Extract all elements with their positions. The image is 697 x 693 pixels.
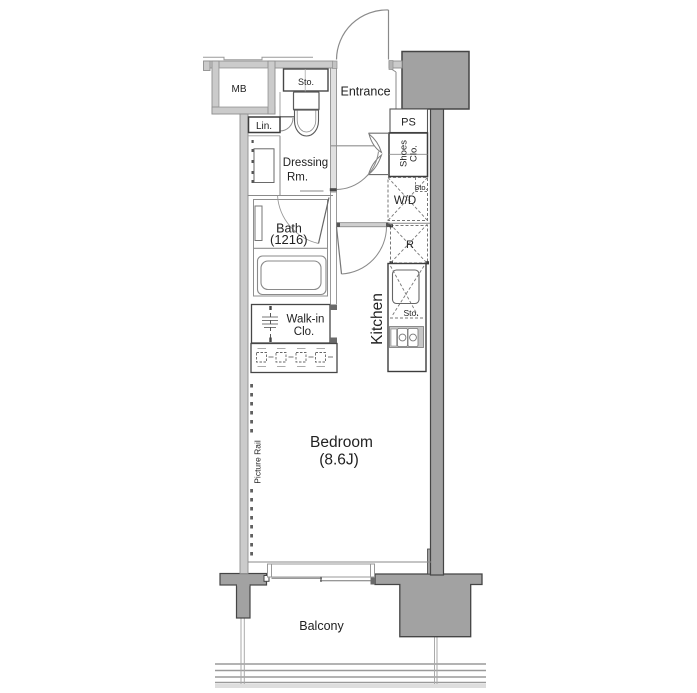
svg-text:Sto.: Sto. [403,308,418,318]
svg-text:Clo.: Clo. [409,145,420,162]
svg-text:(8.6J): (8.6J) [319,452,359,469]
svg-text:MB: MB [232,84,247,95]
svg-text:Balcony: Balcony [299,619,344,633]
svg-text:Clo.: Clo. [294,326,314,338]
svg-text:Rm.: Rm. [287,172,308,184]
svg-text:Sto.: Sto. [414,183,427,192]
svg-text:R: R [406,239,414,251]
svg-text:W/D: W/D [394,195,416,207]
svg-text:Lin.: Lin. [256,121,272,132]
svg-text:Entrance: Entrance [340,85,390,99]
svg-text:(1216): (1216) [270,232,308,247]
svg-text:Dressing: Dressing [283,157,328,169]
svg-text:Sto.: Sto. [298,77,314,87]
svg-text:Picture Rail: Picture Rail [253,440,263,484]
svg-text:Kitchen: Kitchen [369,293,386,345]
svg-text:Walk-in: Walk-in [287,314,325,326]
svg-text:PS: PS [401,117,416,129]
svg-text:Bedroom: Bedroom [310,434,373,451]
